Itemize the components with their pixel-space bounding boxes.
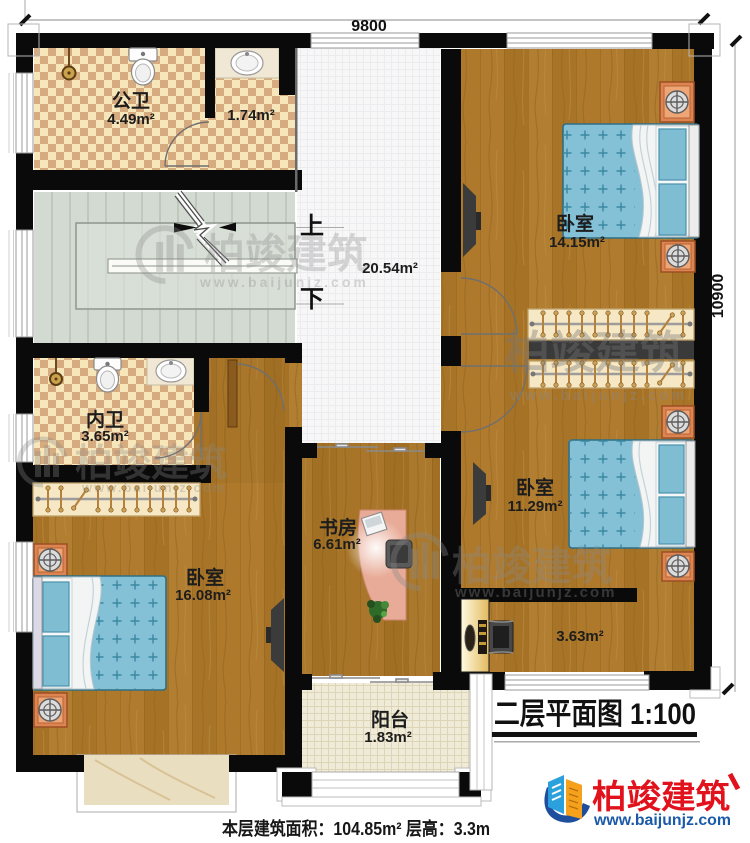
svg-text:本层建筑面积：104.85m² 层高：3.3m: 本层建筑面积：104.85m² 层高：3.3m bbox=[222, 818, 490, 839]
svg-text:www.baijunjz.com: www.baijunjz.com bbox=[81, 480, 226, 495]
svg-text:16.08m²: 16.08m² bbox=[175, 587, 231, 604]
svg-text:柏竣建筑: 柏竣建筑 bbox=[75, 443, 227, 485]
svg-text:www.baijunjz.com: www.baijunjz.com bbox=[509, 387, 687, 404]
svg-text:www.baijunjz.com: www.baijunjz.com bbox=[593, 812, 731, 829]
svg-text:二层平面图 1:100: 二层平面图 1:100 bbox=[494, 698, 696, 731]
svg-text:4.49m²: 4.49m² bbox=[107, 111, 155, 128]
svg-text:卧室: 卧室 bbox=[186, 566, 224, 589]
svg-text:6.61m²: 6.61m² bbox=[313, 536, 361, 553]
svg-text:柏竣建筑: 柏竣建筑 bbox=[204, 231, 368, 277]
svg-text:www.baijunjz.com: www.baijunjz.com bbox=[199, 274, 369, 290]
svg-text:公卫: 公卫 bbox=[112, 90, 150, 112]
svg-text:柏竣建筑: 柏竣建筑 bbox=[452, 545, 612, 589]
svg-text:14.15m²: 14.15m² bbox=[549, 234, 605, 251]
svg-text:上: 上 bbox=[300, 213, 324, 240]
svg-text:10900: 10900 bbox=[710, 274, 727, 319]
svg-text:www.baijunjz.com: www.baijunjz.com bbox=[454, 584, 616, 601]
svg-text:柏竣建筑: 柏竣建筑 bbox=[505, 327, 685, 378]
svg-text:9800: 9800 bbox=[351, 18, 387, 35]
svg-text:3.63m²: 3.63m² bbox=[556, 628, 604, 645]
svg-text:1.74m²: 1.74m² bbox=[227, 107, 275, 124]
svg-text:卧室: 卧室 bbox=[516, 476, 554, 499]
svg-text:1.83m²: 1.83m² bbox=[364, 729, 412, 746]
svg-text:3.65m²: 3.65m² bbox=[81, 428, 129, 445]
svg-text:下: 下 bbox=[300, 286, 324, 313]
svg-text:11.29m²: 11.29m² bbox=[507, 498, 562, 515]
svg-text:卧室: 卧室 bbox=[556, 212, 594, 235]
svg-text:20.54m²: 20.54m² bbox=[362, 260, 418, 277]
svg-text:阳台: 阳台 bbox=[371, 708, 409, 731]
svg-text:柏竣建筑: 柏竣建筑 bbox=[592, 778, 730, 815]
